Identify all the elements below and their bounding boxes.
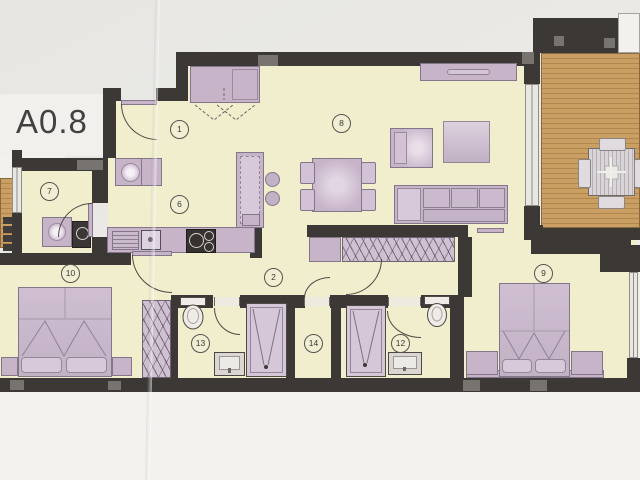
room-number-label: 12 bbox=[391, 334, 410, 353]
door-opening bbox=[214, 297, 240, 306]
toilet bbox=[425, 297, 450, 327]
door-opening bbox=[304, 297, 330, 306]
room-number-label: 7 bbox=[40, 182, 59, 201]
room-number-label: 2 bbox=[264, 268, 283, 287]
shower bbox=[247, 304, 287, 377]
shower bbox=[347, 306, 386, 377]
closet-fold-doors bbox=[195, 88, 255, 120]
plan-linework bbox=[0, 0, 640, 480]
door-opening bbox=[388, 297, 421, 306]
room-number-label: 14 bbox=[304, 334, 323, 353]
bed-seam-lines bbox=[19, 284, 569, 331]
toilet bbox=[181, 298, 206, 330]
room-number-label: 9 bbox=[534, 264, 553, 283]
sheet-title: A0.8 bbox=[16, 103, 88, 141]
room-number-label: 8 bbox=[332, 114, 351, 133]
outdoor-table-center bbox=[597, 157, 626, 187]
room-number-label: 1 bbox=[170, 120, 189, 139]
room-number-label: 6 bbox=[170, 195, 189, 214]
bed-fold-lines bbox=[22, 321, 565, 359]
room-number-label: 13 bbox=[191, 334, 210, 353]
floor-plan-sheet: 1 8 7 6 10 2 13 14 12 9 A0.8 bbox=[0, 0, 640, 480]
door-leaf bbox=[477, 228, 504, 233]
room-number-label: 10 bbox=[61, 264, 80, 283]
